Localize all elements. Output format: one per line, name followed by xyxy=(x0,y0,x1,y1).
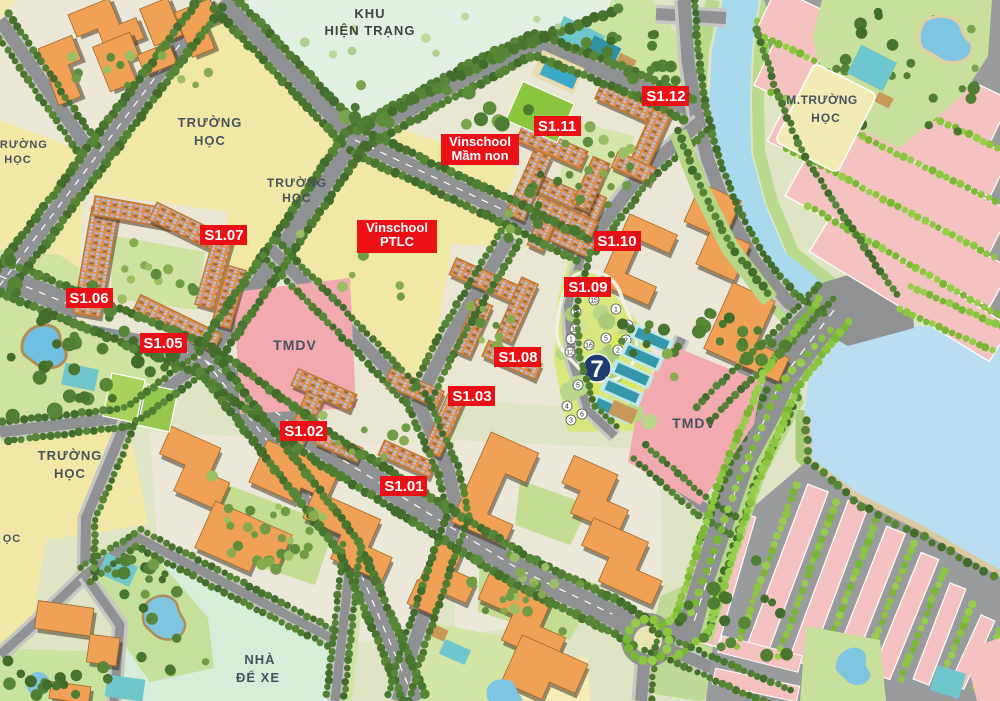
svg-text:1: 1 xyxy=(614,306,618,313)
svg-text:ĐỂ XE: ĐỂ XE xyxy=(236,670,280,685)
svg-text:5: 5 xyxy=(576,382,580,389)
svg-text:7: 7 xyxy=(590,356,603,383)
svg-text:S1.07: S1.07 xyxy=(204,227,243,244)
svg-text:S1.05: S1.05 xyxy=(143,335,182,352)
svg-text:HỌC: HỌC xyxy=(282,191,312,205)
svg-text:S1.09: S1.09 xyxy=(568,279,607,296)
svg-text:TRƯỜNG: TRƯỜNG xyxy=(178,115,243,130)
svg-text:S1.06: S1.06 xyxy=(69,290,108,307)
svg-text:S1.08: S1.08 xyxy=(498,349,537,366)
svg-text:6: 6 xyxy=(580,411,584,418)
svg-text:HỌC: HỌC xyxy=(194,133,226,148)
svg-text:KHU: KHU xyxy=(354,6,385,21)
svg-text:1: 1 xyxy=(569,336,573,343)
svg-text:S1.02: S1.02 xyxy=(284,423,323,440)
svg-text:12: 12 xyxy=(566,349,574,356)
svg-text:HỌC: HỌC xyxy=(811,111,841,125)
svg-text:S1.10: S1.10 xyxy=(597,233,636,250)
svg-text:Vinschool: Vinschool xyxy=(366,220,428,235)
svg-text:3: 3 xyxy=(569,417,573,424)
svg-text:HỌC: HỌC xyxy=(4,154,31,166)
svg-text:2: 2 xyxy=(616,347,620,354)
svg-text:ỌC: ỌC xyxy=(3,533,22,545)
svg-text:TMDV: TMDV xyxy=(273,337,317,353)
svg-text:S1.01: S1.01 xyxy=(384,478,423,495)
svg-text:16: 16 xyxy=(585,342,593,349)
svg-text:HIỆN TRẠNG: HIỆN TRẠNG xyxy=(325,23,416,38)
svg-text:4: 4 xyxy=(565,403,569,410)
svg-text:HỌC: HỌC xyxy=(54,466,86,481)
svg-text:PTLC: PTLC xyxy=(380,234,415,249)
svg-text:Mầm non: Mầm non xyxy=(451,148,508,163)
svg-text:S1.12: S1.12 xyxy=(646,88,685,105)
svg-text:15: 15 xyxy=(590,297,598,304)
svg-text:TRƯỜNG: TRƯỜNG xyxy=(38,448,103,463)
svg-text:Vinschool: Vinschool xyxy=(449,134,511,149)
svg-text:M.TRƯỜNG: M.TRƯỜNG xyxy=(786,92,858,107)
svg-text:NHÀ: NHÀ xyxy=(244,652,275,667)
svg-text:TRƯỜNG: TRƯỜNG xyxy=(267,175,327,190)
svg-text:S1.03: S1.03 xyxy=(452,388,491,405)
svg-text:S1.11: S1.11 xyxy=(538,118,576,135)
svg-text:5: 5 xyxy=(604,335,608,342)
svg-text:TRƯỜNG: TRƯỜNG xyxy=(0,138,48,151)
